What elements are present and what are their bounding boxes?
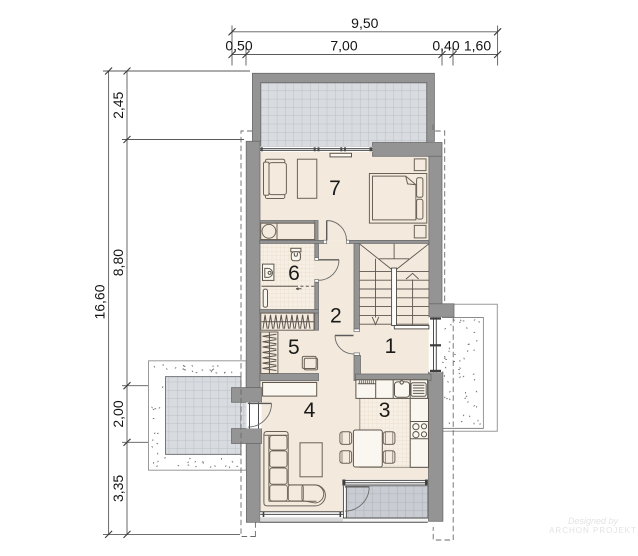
svg-text:0,40: 0,40 (432, 38, 459, 54)
svg-text:Designed by: Designed by (568, 516, 619, 526)
svg-text:7: 7 (329, 177, 341, 200)
svg-text:5: 5 (288, 336, 300, 359)
svg-text:1,60: 1,60 (464, 38, 491, 54)
svg-text:3,35: 3,35 (110, 475, 126, 502)
svg-text:9,50: 9,50 (351, 15, 378, 31)
svg-text:ARCHON PROJEKT: ARCHON PROJEKT (549, 526, 637, 535)
svg-text:2,45: 2,45 (110, 91, 126, 118)
svg-text:0,50: 0,50 (225, 38, 252, 54)
svg-text:16,60: 16,60 (91, 284, 107, 319)
svg-text:2,00: 2,00 (110, 400, 126, 427)
svg-text:2: 2 (330, 305, 342, 328)
svg-text:6: 6 (288, 262, 300, 285)
svg-text:7,00: 7,00 (330, 38, 357, 54)
svg-text:8,80: 8,80 (110, 249, 126, 276)
svg-text:1: 1 (385, 335, 397, 358)
svg-text:4: 4 (304, 399, 316, 422)
svg-text:3: 3 (379, 399, 391, 422)
